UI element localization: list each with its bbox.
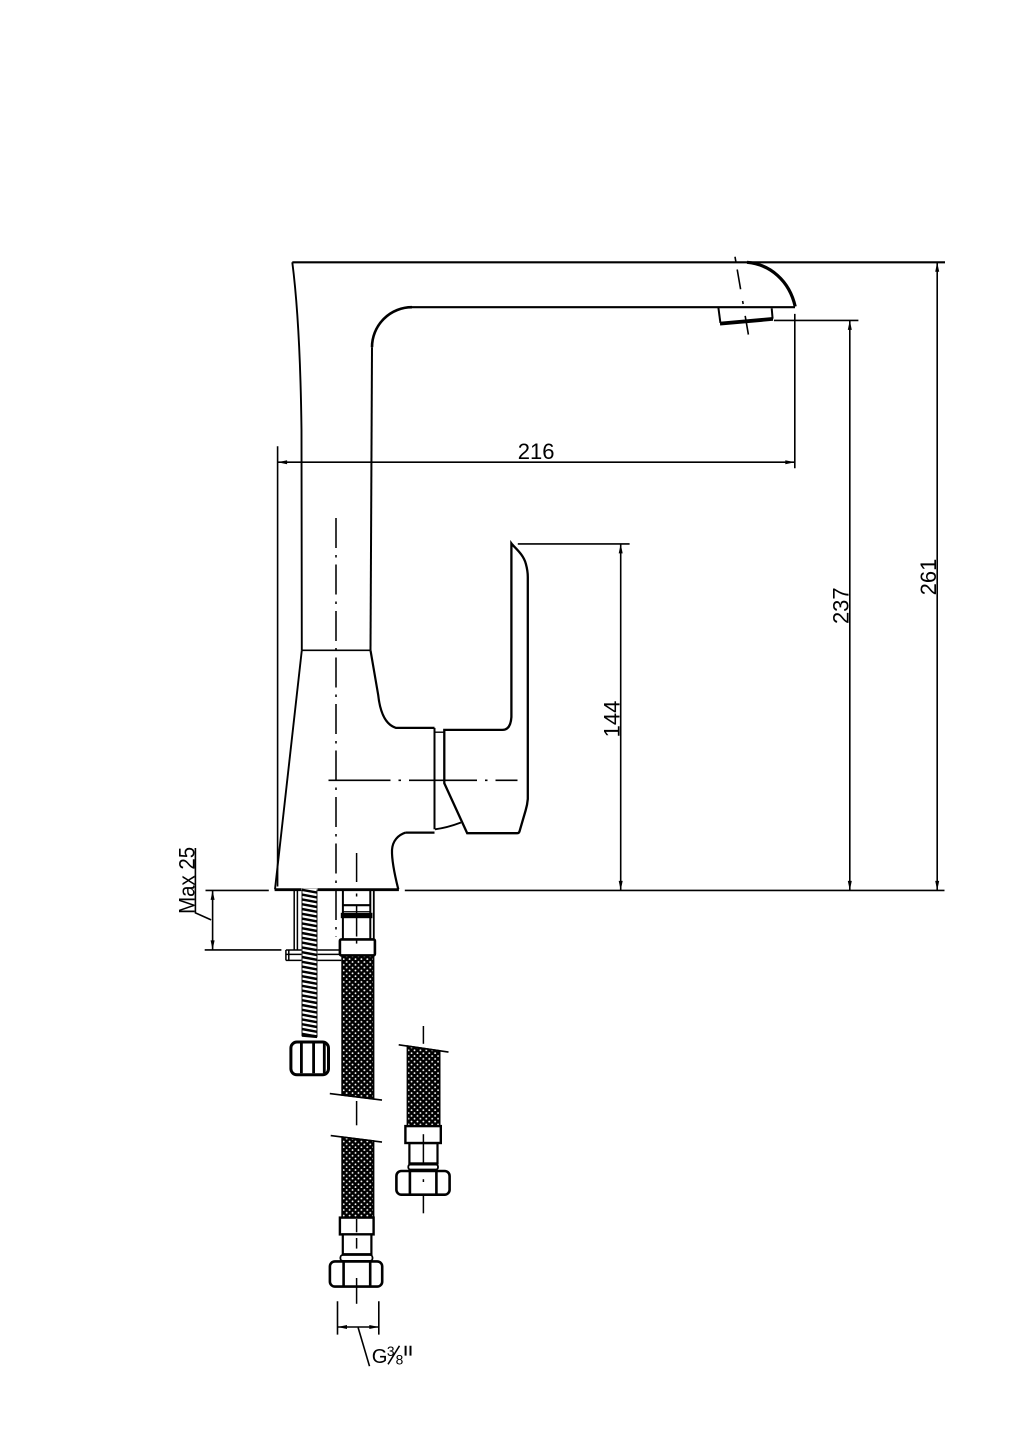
svg-text:144: 144: [599, 701, 624, 738]
svg-text:237: 237: [828, 587, 853, 624]
svg-text:216: 216: [518, 439, 555, 464]
svg-text:G: G: [372, 1346, 388, 1368]
svg-text:Max 25: Max 25: [175, 847, 200, 914]
svg-text:8: 8: [396, 1352, 404, 1367]
svg-text:261: 261: [916, 559, 941, 596]
